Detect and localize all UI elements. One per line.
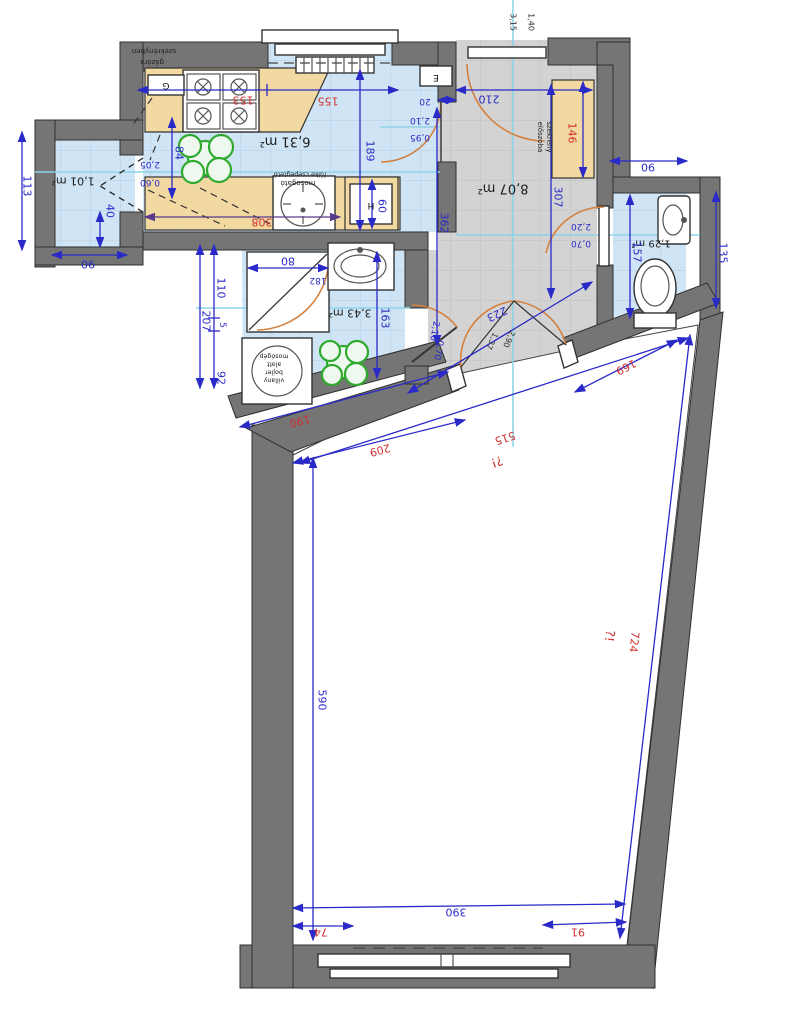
wc-basin-tap bbox=[681, 217, 687, 223]
plant-kitchen-icon bbox=[179, 135, 233, 183]
dim-220: 2,20 bbox=[571, 221, 591, 231]
dim-60: 60 bbox=[376, 199, 389, 213]
dim-146: 146 bbox=[566, 123, 579, 144]
floorplan-drawing: 6,31 m² 1,01 m² 8,07 m² 1,29 m² 3,43 m² … bbox=[0, 0, 793, 1024]
toilet-tank bbox=[634, 313, 676, 328]
cabinet-note-line1: előszoba bbox=[536, 122, 545, 153]
wc-door-leaf bbox=[599, 206, 609, 266]
kitchen-radiator bbox=[296, 57, 374, 73]
storage-area-label: 1,01 m² bbox=[51, 175, 94, 188]
dim-135: 135 bbox=[717, 243, 730, 264]
dim-307: 307 bbox=[552, 187, 565, 208]
kitchen-window-outer bbox=[262, 30, 398, 43]
dim-40: 40 bbox=[104, 204, 117, 218]
wall-bath-hall-post bbox=[405, 366, 428, 384]
kitchen-window-inner bbox=[275, 44, 385, 55]
dim-20: 20 bbox=[419, 96, 431, 106]
plant-bathroom-icon bbox=[320, 341, 368, 385]
dim-74: 74 bbox=[314, 926, 328, 939]
living-window-outer bbox=[318, 954, 570, 967]
dim-182: 182 bbox=[309, 275, 326, 285]
entry-note-315: 3,15 bbox=[509, 13, 518, 31]
dim-724-question: ?! bbox=[602, 629, 618, 642]
dim-210: 210 bbox=[479, 93, 500, 106]
dim-070a: 0,70 bbox=[571, 238, 591, 248]
cabinet-note-line2: szekrény bbox=[545, 121, 553, 152]
hall-area-label: 8,07 m² bbox=[478, 181, 529, 196]
wm-note-line3: alatt bbox=[266, 361, 281, 368]
wall-living-left bbox=[252, 425, 293, 988]
fridge-label: H bbox=[368, 200, 375, 210]
dim-110: 110 bbox=[215, 278, 228, 299]
dim-153: 153 bbox=[233, 94, 254, 107]
wall-storage-left bbox=[35, 120, 55, 267]
dim-390: 390 bbox=[446, 906, 467, 919]
sink-note-line1: fülke csepegtető bbox=[274, 171, 327, 180]
gas-note-line2: szekrényben bbox=[132, 47, 176, 55]
wall-hall-wc-upper bbox=[597, 65, 613, 208]
dim-308: 308 bbox=[252, 216, 273, 229]
dim-91: 91 bbox=[571, 926, 585, 939]
dim-205: 2,05 bbox=[140, 159, 160, 169]
dim-155: 155 bbox=[318, 95, 339, 108]
wm-note-line2: bojler bbox=[265, 369, 283, 376]
wm-note-line4: mosógép bbox=[260, 353, 289, 361]
kitchen-area-label: 6,31 m² bbox=[260, 134, 311, 149]
dim-113: 113 bbox=[21, 176, 34, 197]
toilet-bowl bbox=[634, 259, 676, 317]
bath-area-label: 3,43 m² bbox=[328, 307, 371, 320]
dim-92: 92 bbox=[215, 371, 228, 385]
dim-90b: 90 bbox=[641, 161, 655, 174]
sink-drain bbox=[301, 208, 306, 213]
dim-189: 189 bbox=[364, 141, 377, 162]
entry-note-140: 1,40 bbox=[527, 13, 536, 31]
wm-note-line1: villany bbox=[263, 377, 284, 384]
living-window-inner bbox=[330, 969, 558, 978]
dim-724: 724 bbox=[626, 631, 641, 653]
dim-590: 590 bbox=[316, 690, 329, 711]
dim-80: 80 bbox=[281, 255, 295, 268]
entrance-door-leaf bbox=[468, 47, 546, 58]
dim-157: 157 bbox=[631, 242, 644, 263]
dim-060: 0,60 bbox=[140, 177, 160, 187]
electric-meter-label: E bbox=[433, 72, 439, 82]
floorplan-canvas: 6,31 m² 1,01 m² 8,07 m² 1,29 m² 3,43 m² … bbox=[0, 0, 793, 1024]
dim-163: 163 bbox=[379, 308, 392, 329]
dim-90a: 90 bbox=[81, 258, 95, 271]
dim-5: 5 bbox=[217, 322, 227, 328]
gas-note-line1: gázóra bbox=[140, 58, 164, 66]
bath-basin-tap bbox=[357, 247, 363, 253]
dim-84: 84 bbox=[173, 146, 186, 160]
dim-207: 207 bbox=[200, 311, 213, 332]
dim-362: 362 bbox=[438, 213, 451, 234]
gas-meter-label: G bbox=[162, 80, 169, 90]
sink-note-line2: mosogató bbox=[281, 179, 316, 187]
dim-210a: 2,10 bbox=[410, 115, 430, 125]
dim-095: 0,95 bbox=[410, 132, 430, 142]
wall-kitchen-left-lower bbox=[120, 212, 143, 250]
